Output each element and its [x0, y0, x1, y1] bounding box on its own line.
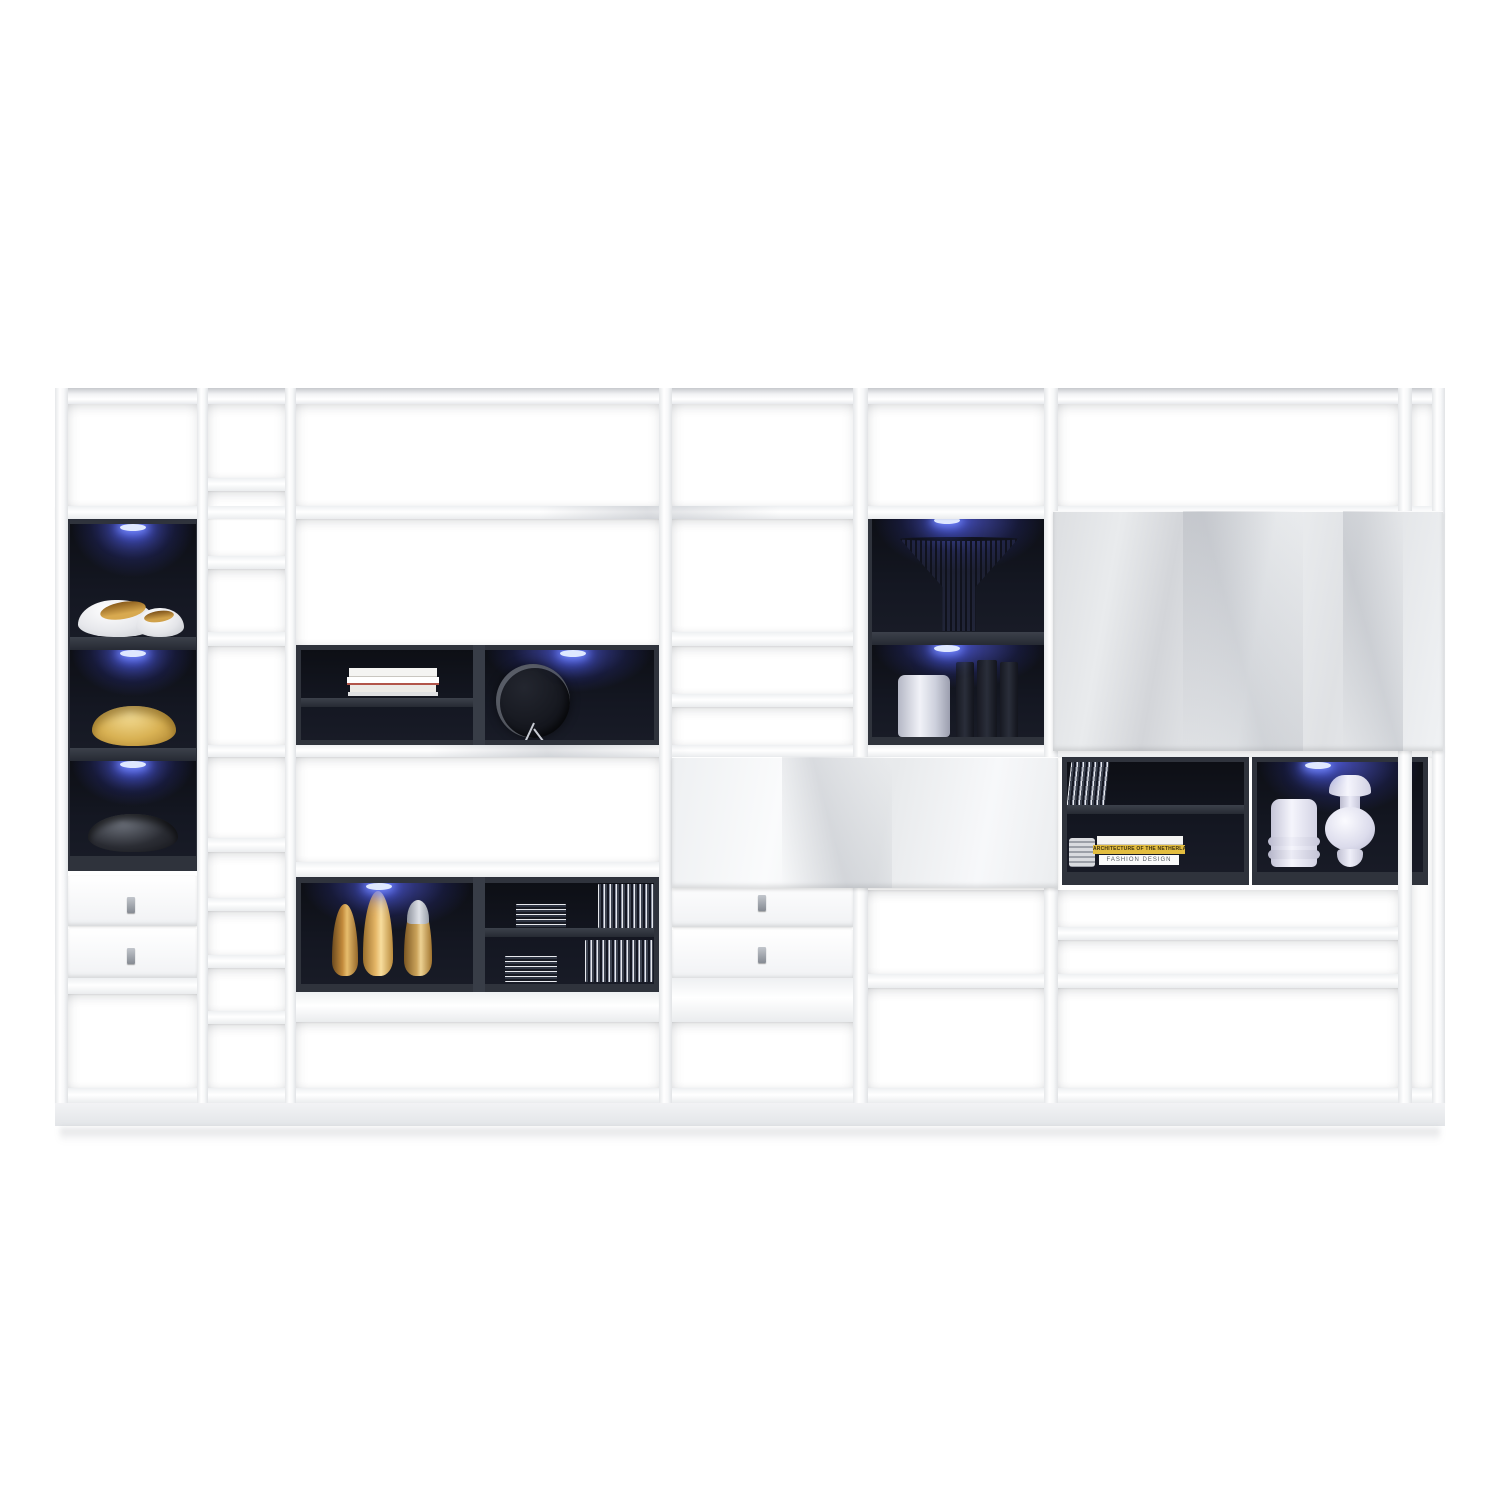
- led-spot: [560, 650, 586, 657]
- led-spot: [366, 883, 392, 890]
- dark-books: [956, 662, 974, 737]
- drawer-handle: [758, 947, 766, 963]
- vase-curvy-top: [1329, 775, 1371, 797]
- white-cylinder-vase: [898, 675, 950, 737]
- open-cell: [868, 404, 1044, 506]
- gloss-reflection: [430, 745, 690, 757]
- flap-drawer-front: [672, 757, 1058, 888]
- open-cell: [208, 852, 285, 898]
- open-cell: [208, 968, 285, 1011]
- plinth: [55, 1103, 1445, 1126]
- open-cell: [296, 757, 659, 862]
- gold-bowl: [92, 706, 176, 746]
- zigzag-sculpture: [1069, 838, 1095, 867]
- dark-shelf: [70, 637, 196, 650]
- book: [350, 685, 436, 692]
- bowl-duo: [78, 596, 188, 637]
- display-cell-cds: [485, 883, 654, 984]
- top-rail: [55, 388, 1445, 404]
- wall-clock: [496, 664, 570, 738]
- display-cell-vase-books: [872, 645, 1048, 737]
- display-cell-books: [301, 650, 473, 740]
- dark-shelf: [1067, 805, 1244, 814]
- display-cell-gold-bowl: [70, 650, 196, 748]
- display-cell-bowls: [70, 524, 196, 637]
- cd-stack: [516, 904, 566, 928]
- clock-hour-hand: [524, 723, 535, 740]
- post: [55, 388, 68, 1103]
- open-cell: [868, 890, 1044, 974]
- open-cell: [208, 404, 285, 478]
- cd-stack: [598, 884, 654, 928]
- open-cell: [208, 646, 285, 745]
- open-cell: [208, 757, 285, 838]
- dark-divider: [473, 877, 485, 992]
- black-bowl: [88, 814, 178, 852]
- open-cell: [208, 911, 285, 955]
- post: [853, 388, 868, 1103]
- cd-stack: [585, 940, 653, 982]
- led-spot: [120, 761, 146, 768]
- gloss-reflection: [1183, 511, 1303, 751]
- open-cell: [208, 569, 285, 632]
- dark-books: [1000, 662, 1018, 737]
- book: [347, 677, 439, 685]
- display-cell-black-bowl: [70, 761, 196, 856]
- vase-curvy-bulb: [1325, 807, 1375, 851]
- display-cell-cd-books: ARCHITECTURE OF THE NETHERLANDS FASHION …: [1067, 762, 1244, 872]
- middle-drawer-unit: [672, 877, 853, 980]
- open-cell: [208, 1024, 285, 1088]
- open-cell: [208, 491, 285, 556]
- dark-shelf: [872, 632, 1048, 645]
- books-clock-box: [296, 645, 659, 745]
- ladder-shelf: [208, 632, 285, 646]
- slot-shelf: [672, 694, 853, 707]
- left-drawer-unit: [68, 876, 197, 980]
- left-display-box: [64, 519, 202, 871]
- open-cell: [296, 1022, 659, 1088]
- dark-shelf: [301, 698, 473, 707]
- open-cell: [1058, 940, 1398, 974]
- shelf-rail: [1058, 927, 1400, 940]
- dark-shelf: [70, 748, 196, 761]
- open-cell: [1058, 404, 1398, 506]
- book-stack: [347, 668, 439, 696]
- drawer-handle: [758, 895, 766, 911]
- book-yellow-spine: ARCHITECTURE OF THE NETHERLANDS: [1093, 845, 1185, 854]
- dark-shelf: [485, 928, 654, 937]
- shelf-rail: [296, 862, 672, 877]
- open-cell: [868, 988, 1044, 1088]
- ladder-shelf: [208, 898, 285, 911]
- slot-shelf: [672, 632, 853, 646]
- shelf-rail: [659, 978, 853, 1022]
- wire-basket-rim: [900, 537, 1018, 541]
- drawer: [68, 929, 197, 978]
- ladder-shelf: [208, 955, 285, 968]
- post: [659, 388, 672, 1103]
- ladder-shelf: [208, 838, 285, 852]
- gold-vase-silver-cap: [407, 900, 429, 924]
- book: [348, 692, 438, 696]
- cd-stack: [1067, 762, 1109, 805]
- open-cell: [296, 519, 659, 645]
- vase-cylinder-ridge: [1268, 837, 1320, 846]
- shelf-rail: [296, 992, 659, 1022]
- book: [1097, 836, 1183, 845]
- led-spot: [120, 524, 146, 531]
- product-photo-canvas: ARCHITECTURE OF THE NETHERLANDS FASHION …: [0, 0, 1500, 1500]
- bottom-shelf: [55, 1088, 1445, 1103]
- led-spot: [120, 650, 146, 657]
- post: [197, 388, 208, 1103]
- floor-shadow: [60, 1128, 1440, 1142]
- drawer: [672, 930, 853, 979]
- gloss-reflection: [782, 757, 892, 888]
- dark-divider: [473, 645, 485, 745]
- book-white-spine: FASHION DESIGN: [1099, 855, 1179, 865]
- gold-vase: [332, 904, 358, 976]
- open-cell: [672, 519, 853, 632]
- vase-cylinder-ridge: [1268, 850, 1320, 859]
- gold-vase: [363, 891, 393, 976]
- ladder-shelf: [208, 478, 285, 491]
- display-cell-clock: [485, 650, 654, 740]
- post: [285, 388, 296, 1103]
- cd-books-box: ARCHITECTURE OF THE NETHERLANDS FASHION …: [1062, 757, 1249, 885]
- gold-vases: [329, 887, 439, 980]
- book: [349, 668, 437, 677]
- gloss-reflection: [1343, 511, 1403, 751]
- open-cell: [672, 1022, 853, 1088]
- led-spot: [934, 645, 960, 652]
- vase-curvy-foot: [1337, 849, 1363, 867]
- display-cell-gold-vases: [301, 883, 473, 984]
- open-cell: [672, 707, 853, 745]
- shelf-rail: [853, 974, 1400, 988]
- cd-stack: [505, 956, 557, 982]
- drawer-handle: [127, 897, 135, 913]
- open-cell: [1058, 988, 1398, 1088]
- ladder-shelf: [208, 1011, 285, 1024]
- open-cell: [1058, 890, 1398, 927]
- shelf-rail: [55, 978, 208, 994]
- led-spot: [1305, 762, 1331, 769]
- sliding-door-panel: [1053, 511, 1443, 751]
- open-cell: [68, 404, 197, 506]
- drawer: [68, 876, 197, 926]
- ladder-shelf: [208, 556, 285, 569]
- open-cell: [672, 404, 853, 506]
- open-cell: [68, 994, 197, 1088]
- open-cell: [296, 404, 659, 506]
- basket-display-box: [866, 512, 1054, 750]
- drawer-handle: [127, 948, 135, 964]
- dark-books: [977, 660, 997, 737]
- display-cell-basket: [872, 517, 1048, 632]
- design-books: ARCHITECTURE OF THE NETHERLANDS FASHION …: [1093, 836, 1185, 867]
- open-cell: [672, 646, 853, 694]
- white-vases: [1271, 772, 1381, 867]
- vases-cd-box: [296, 877, 659, 992]
